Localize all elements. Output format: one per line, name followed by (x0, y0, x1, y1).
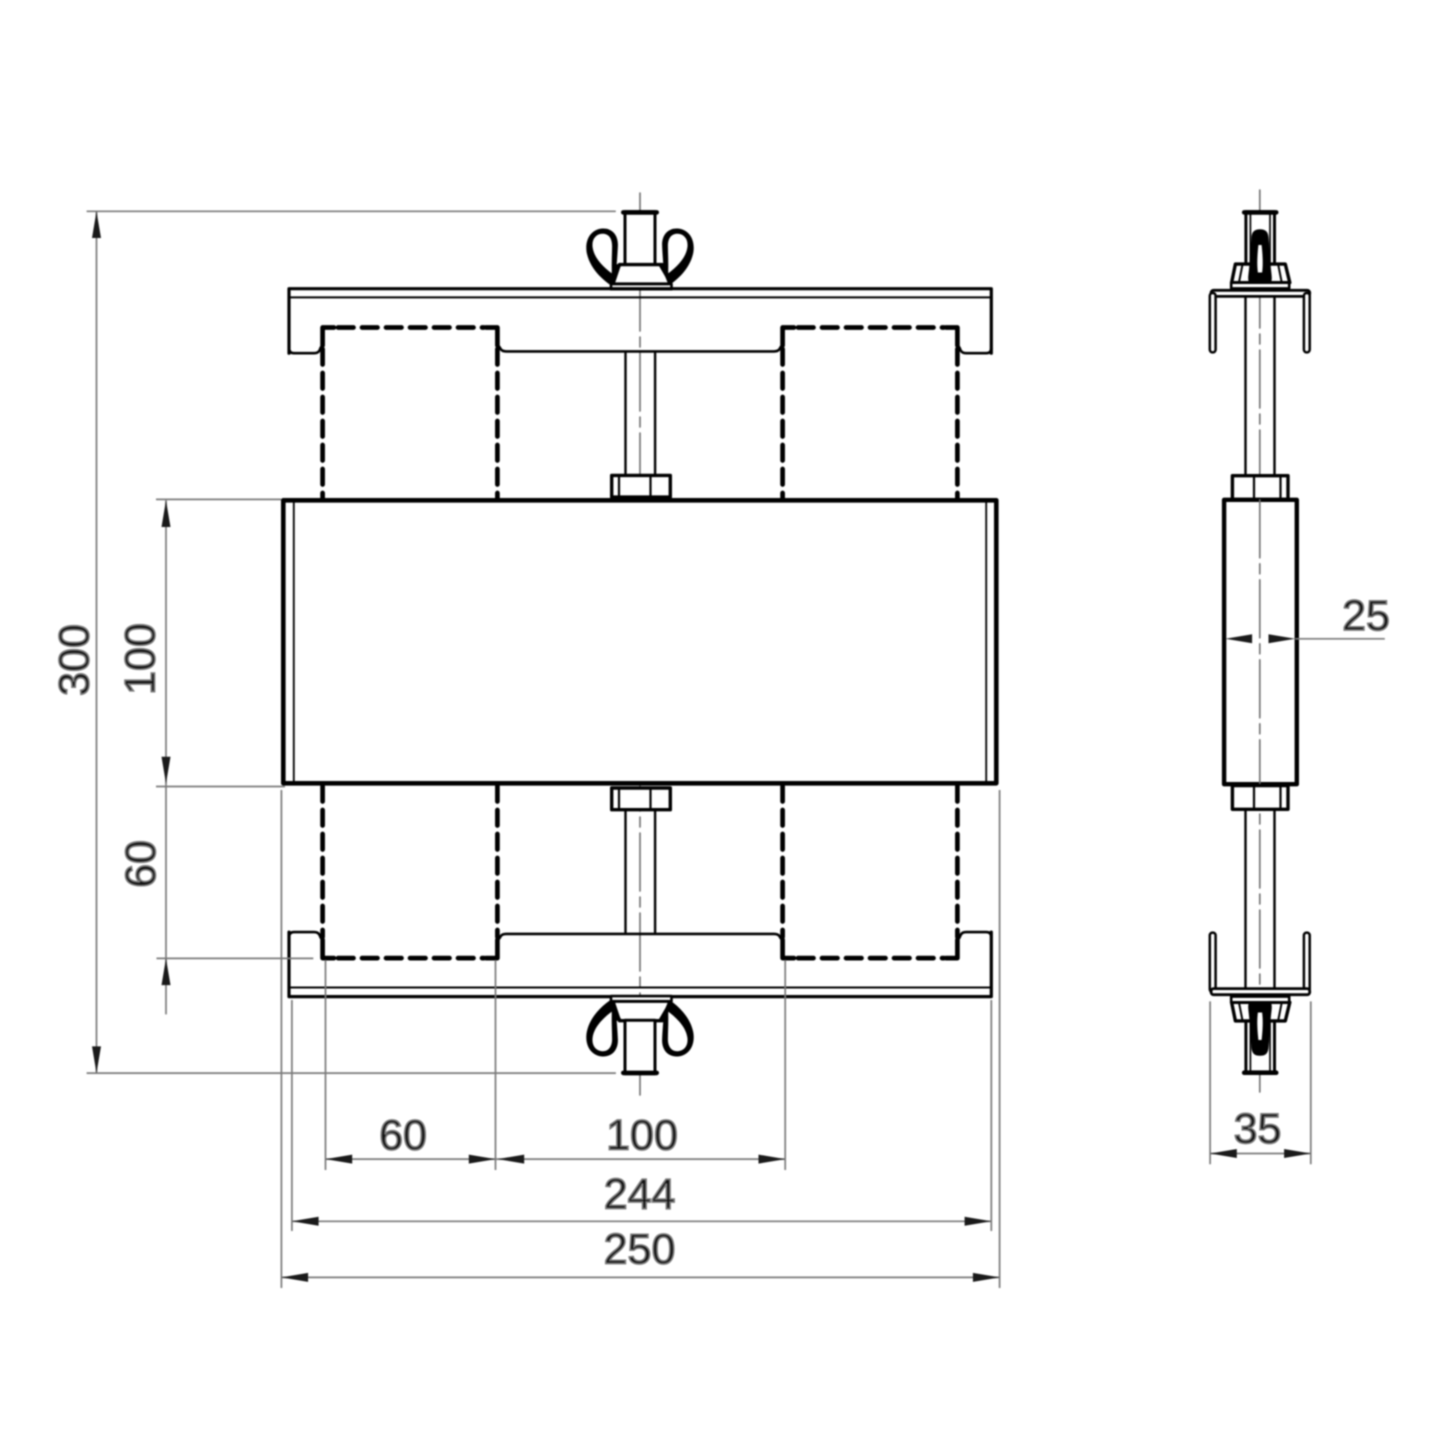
svg-text:60: 60 (117, 840, 165, 888)
svg-text:35: 35 (1234, 1105, 1282, 1153)
svg-text:244: 244 (604, 1171, 676, 1219)
svg-text:300: 300 (51, 624, 99, 696)
svg-text:250: 250 (604, 1226, 676, 1274)
svg-text:100: 100 (117, 623, 165, 695)
svg-text:60: 60 (379, 1112, 427, 1160)
svg-text:100: 100 (606, 1112, 678, 1160)
svg-text:25: 25 (1342, 592, 1390, 640)
